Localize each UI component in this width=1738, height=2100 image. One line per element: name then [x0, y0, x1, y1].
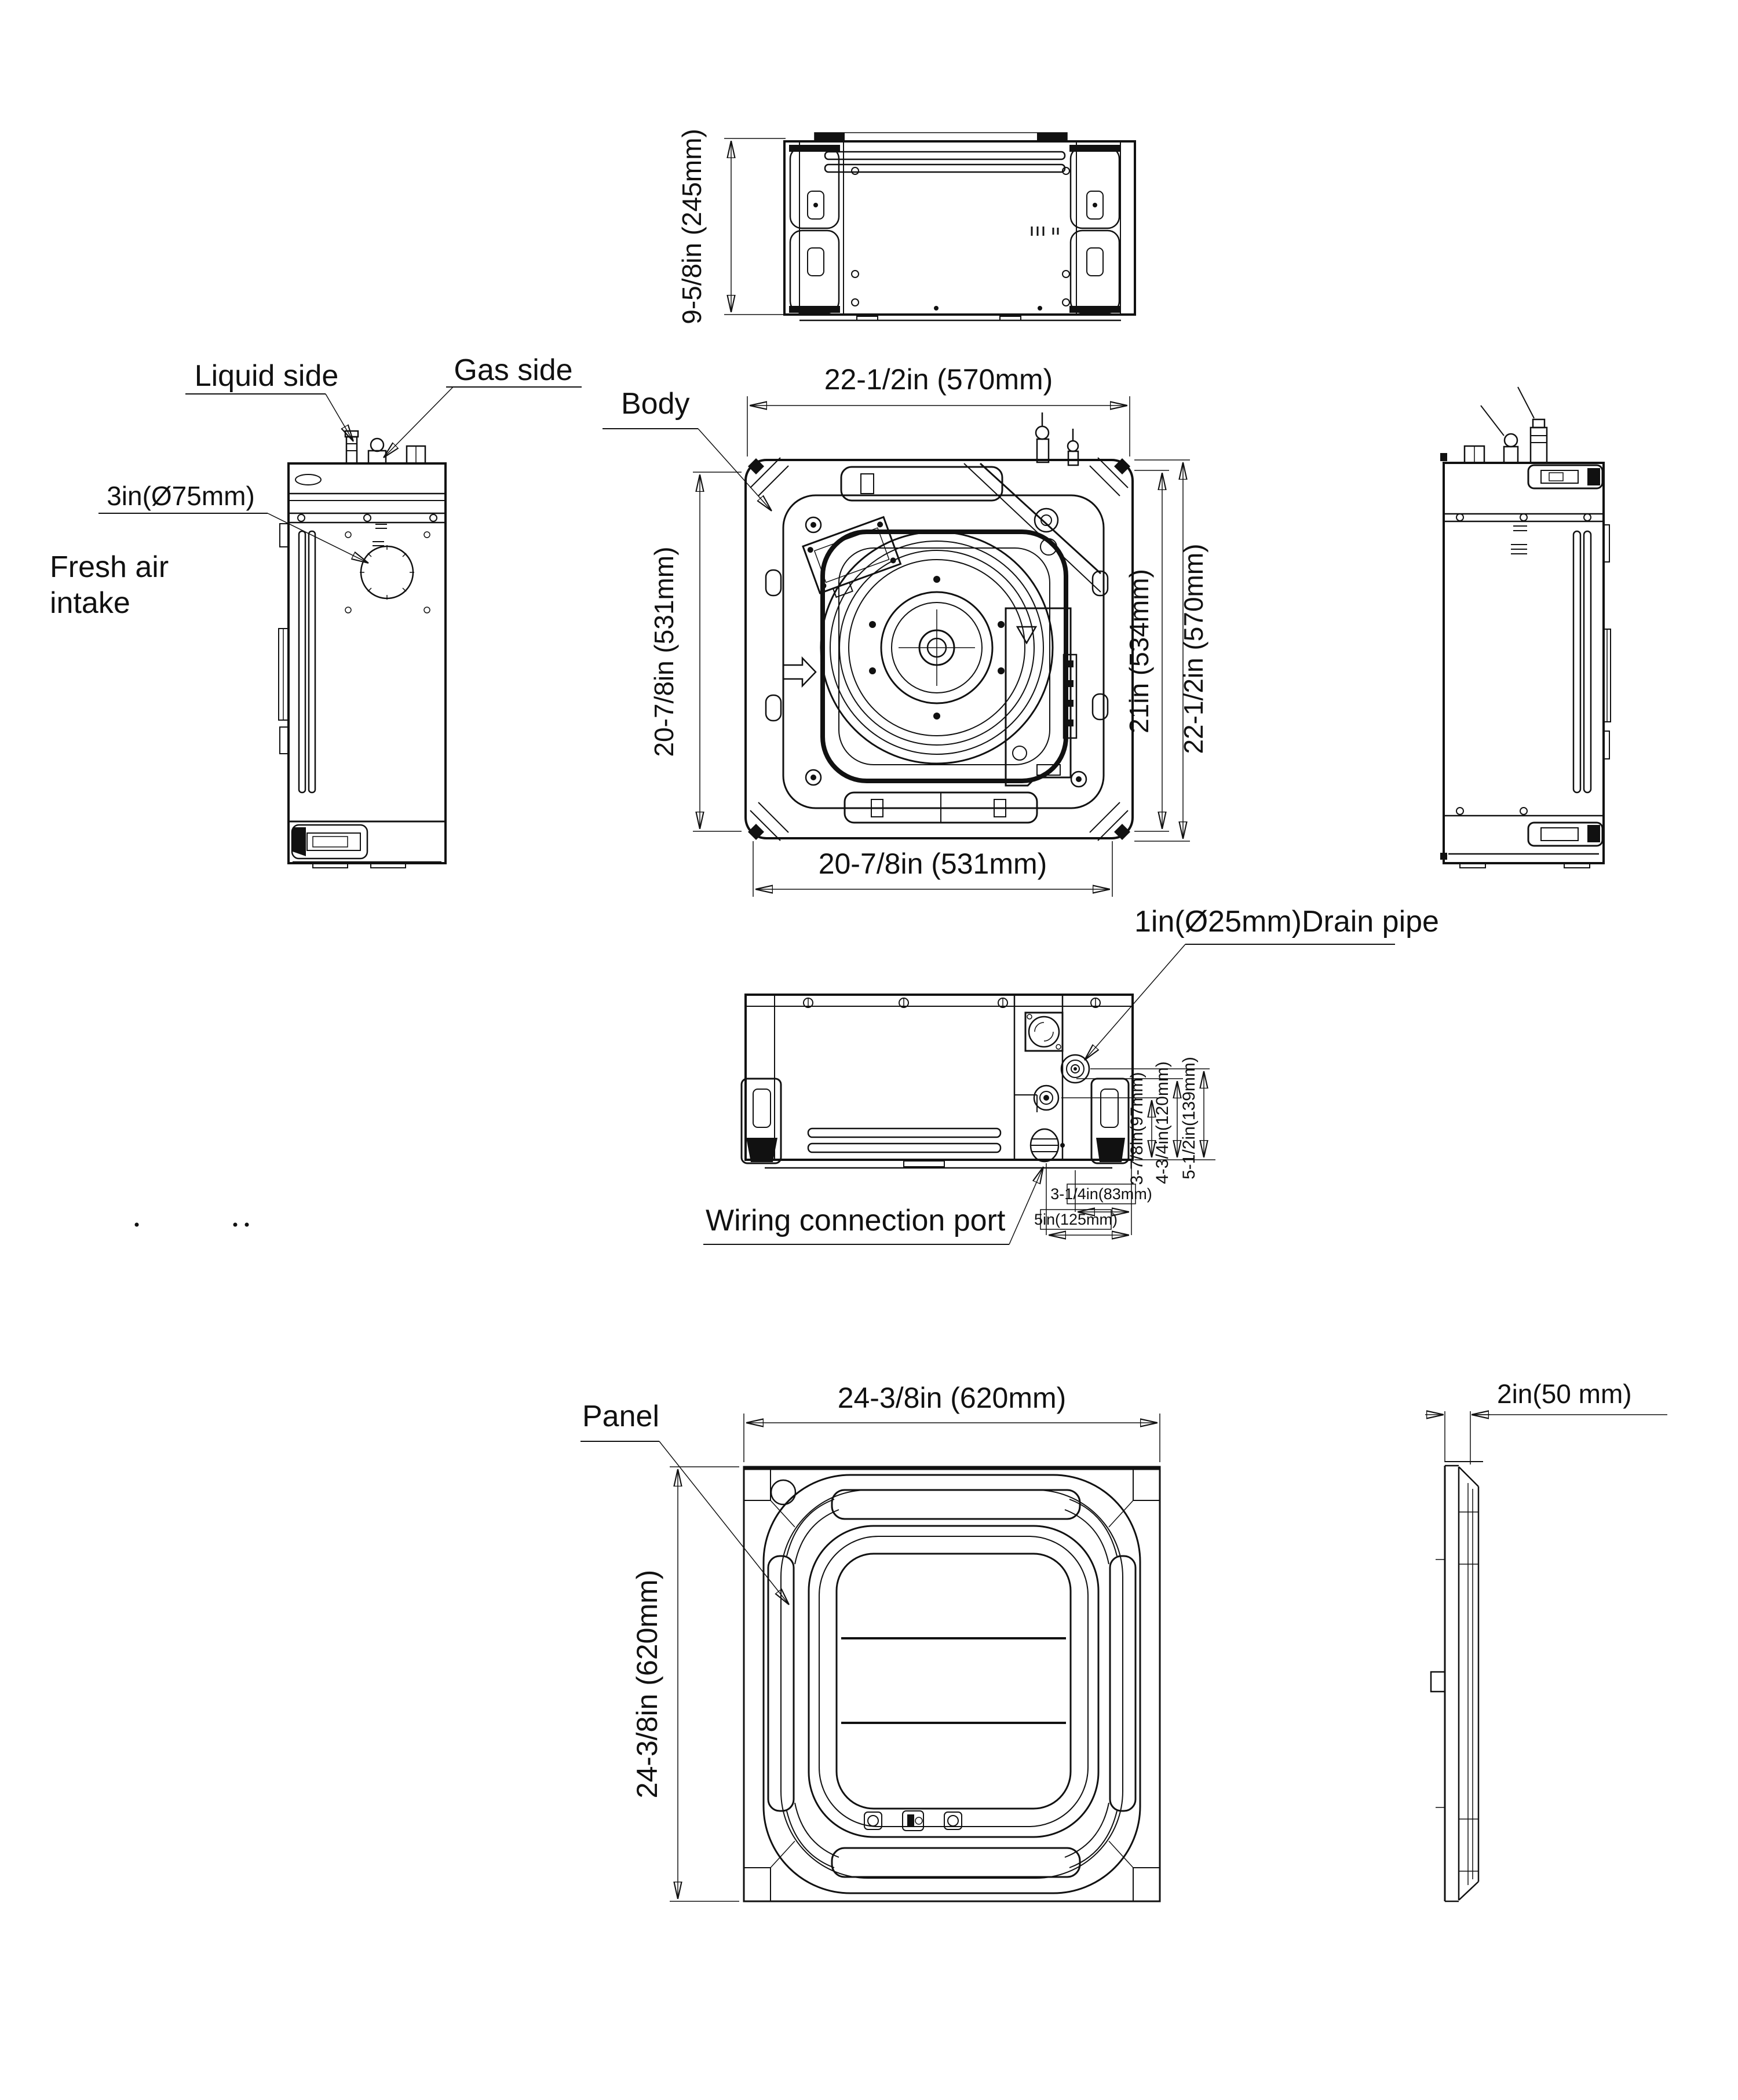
airflow-arrow-icon: [783, 658, 816, 686]
intake-grille: [837, 1554, 1071, 1809]
scan-specks: [135, 1223, 249, 1227]
hanger-bracket: [789, 145, 840, 313]
wiring-port-upper: [1034, 1086, 1058, 1110]
label-panel: Panel: [580, 1400, 789, 1605]
wiring-port-lower: [1031, 1129, 1065, 1162]
dim-125: 5in(125mm): [1034, 1211, 1118, 1228]
dimension-panel-height: 24-3/8in (620mm): [631, 1467, 739, 1901]
panel-view: 24-3/8in (620mm) 24-3/8in (620mm) Panel: [580, 1382, 1160, 1901]
fresh-air-intake-hole: [345, 532, 430, 613]
dim-50: 2in(50 mm): [1497, 1379, 1632, 1409]
dim-139: 5-1/2in(139mm): [1180, 1057, 1199, 1179]
dim-620-top: 24-3/8in (620mm): [838, 1382, 1067, 1414]
gas-valve: [368, 439, 386, 463]
label-wiring-port: Wiring connection port: [703, 1167, 1043, 1244]
intake-dim-text: 3in(Ø75mm): [107, 481, 255, 511]
label-drain-pipe: 1in(Ø25mm)Drain pipe: [1085, 905, 1439, 1060]
fan: [821, 532, 1053, 764]
dim-570-top: 22-1/2in (570mm): [824, 363, 1053, 396]
dimension-plan-bottom: 20-7/8in (531mm): [753, 841, 1112, 897]
right-side-view: [1440, 387, 1611, 868]
hanger-bracket: [1091, 1079, 1129, 1163]
dim-531-bottom: 20-7/8in (531mm): [819, 848, 1047, 880]
dimension-top-view-height: 9-5/8in (245mm): [677, 129, 786, 324]
dim-245: 9-5/8in (245mm): [677, 129, 707, 324]
heat-exchanger-coil: [823, 532, 1066, 781]
dimension-port-heights: 3-7/8in(97mm) 4-3/4in(120mm) 5-1/2in(139…: [1061, 1057, 1215, 1185]
label-gas-side: Gas side: [384, 353, 582, 458]
intake-text: intake: [50, 586, 130, 620]
dim-534-right: 21in (534mm): [1124, 569, 1154, 733]
dim-570-right: 22-1/2in (570mm): [1178, 543, 1208, 754]
dim-83: 3-1/4in(83mm): [1050, 1185, 1152, 1203]
dim-531-left: 20-7/8in (531mm): [649, 546, 679, 757]
louver-top: [832, 1490, 1080, 1519]
hanger-bracket: [1528, 465, 1602, 488]
fresh-air-text: Fresh air: [50, 550, 169, 584]
front-view: 3-7/8in(97mm) 4-3/4in(120mm) 5-1/2in(139…: [703, 905, 1439, 1244]
top-view: 9-5/8in (245mm): [677, 129, 1135, 324]
hanger-bracket: [1528, 823, 1602, 846]
gas-side-text: Gas side: [454, 353, 572, 387]
dimension-plan-right-inner: 21in (534mm): [1124, 470, 1169, 831]
dimension-panel-depth: 2in(50 mm): [1425, 1379, 1667, 1464]
dim-620-left: 24-3/8in (620mm): [631, 1570, 663, 1799]
drain-pipe-text: 1in(Ø25mm)Drain pipe: [1134, 905, 1439, 938]
terminal-box: [803, 517, 904, 602]
plan-view: 22-1/2in (570mm) 20-7/8in (531mm) 21in (…: [603, 363, 1208, 897]
liquid-side-text: Liquid side: [195, 359, 339, 393]
wiring-port-text: Wiring connection port: [706, 1204, 1006, 1237]
label-liquid-side: Liquid side: [185, 359, 353, 441]
panel-text: Panel: [582, 1400, 659, 1433]
panel-corner-hole: [771, 1480, 795, 1504]
dimension-plan-left: 20-7/8in (531mm): [649, 472, 742, 831]
dim-120: 4-3/4in(120mm): [1153, 1061, 1172, 1184]
dimension-plan-top: 22-1/2in (570mm): [747, 363, 1130, 456]
dimension-panel-width: 24-3/8in (620mm): [744, 1382, 1160, 1462]
panel-side-view: 2in(50 mm): [1425, 1379, 1667, 1901]
body-text: Body: [621, 387, 690, 421]
liquid-valve: [345, 431, 358, 463]
left-side-view: Liquid side Gas side 3in(Ø75mm) Fresh ai…: [50, 353, 582, 868]
label-fresh-air-intake: 3in(Ø75mm) Fresh air intake: [50, 481, 368, 620]
pump-box: [1025, 1013, 1062, 1051]
dim-97: 3-7/8in(97mm): [1127, 1072, 1147, 1185]
cassette-dimension-drawing: 9-5/8in (245mm) Liquid si: [0, 0, 1738, 2100]
hanger-bracket: [1069, 145, 1120, 313]
louver-bottom: [832, 1848, 1080, 1877]
drawing-canvas: 9-5/8in (245mm) Liquid si: [0, 0, 1738, 2100]
